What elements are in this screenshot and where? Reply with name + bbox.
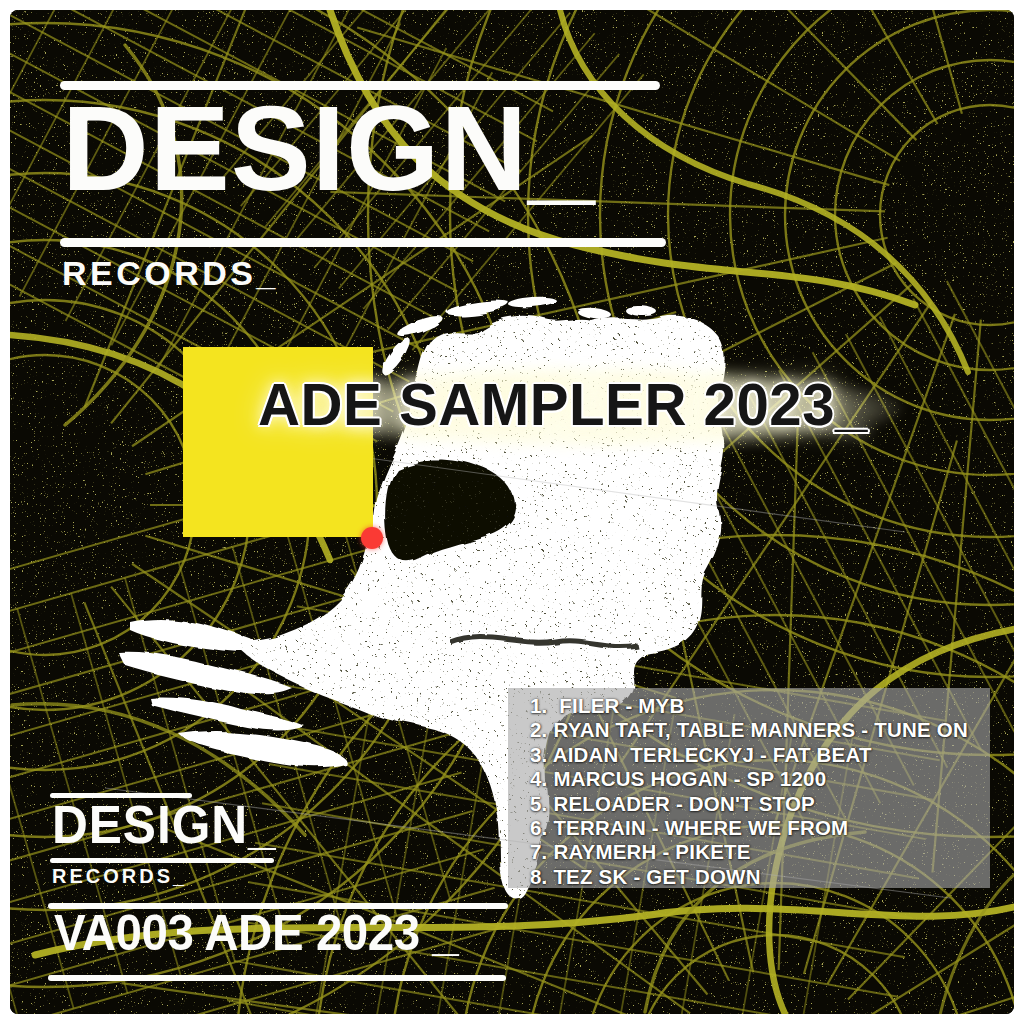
brand-top-rule-lower (60, 238, 666, 247)
location-dot-icon (361, 527, 383, 549)
brand-bottom-subtitle: RECORDS_ (52, 866, 187, 886)
catalog-text: VA003 ADE 2023 _ (54, 908, 458, 958)
track-item: 7. RAYMERH - PIKETE (530, 840, 990, 864)
track-item: 5. RELOADER - DON'T STOP (530, 792, 990, 816)
album-title: ADE SAMPLER 2023_ (258, 375, 868, 435)
brand-bottom-rule-mid (50, 858, 274, 863)
catalog-rule-lower (48, 975, 506, 981)
track-item: 8. TEZ SK - GET DOWN (530, 865, 990, 889)
track-item: 6. TERRAIN - WHERE WE FROM (530, 816, 990, 840)
brand-top-subtitle: RECORDS_ (62, 256, 279, 290)
track-item: 4. MARCUS HOGAN - SP 1200 (530, 767, 990, 791)
track-item: 1. FILER - MYB (530, 694, 990, 718)
track-item: 3. AIDAN TERLECKYJ - FAT BEAT (530, 743, 990, 767)
brand-bottom-title: DESIGN_ (52, 797, 277, 851)
brand-top-title: DESIGN_ (62, 88, 596, 208)
track-item: 2. RYAN TAFT, TABLE MANNERS - TUNE ON (530, 718, 990, 742)
album-cover: ADE SAMPLER 2023_ DESIGN_ RECORDS_ 1. FI… (10, 10, 1014, 1014)
tracklist: 1. FILER - MYB2. RYAN TAFT, TABLE MANNER… (530, 694, 990, 889)
tracklist-panel: 1. FILER - MYB2. RYAN TAFT, TABLE MANNER… (508, 688, 990, 888)
